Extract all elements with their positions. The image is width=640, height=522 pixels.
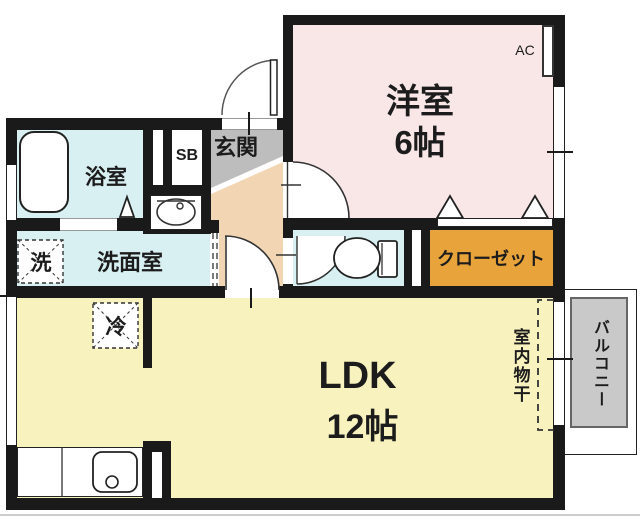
label-ac: AC [510, 41, 540, 59]
hall-door-swing [225, 236, 279, 290]
label-closet: クローゼット [432, 246, 550, 270]
label-balcony: バルコニー [587, 310, 611, 418]
indoor-drying-bracket [538, 300, 554, 430]
label-washroom: 洗面室 [90, 248, 170, 274]
toilet-bowl [334, 238, 380, 278]
entry-door-arc [222, 60, 277, 115]
label-western-size: 6帖 [360, 121, 480, 159]
label-bath: 浴室 [70, 164, 142, 188]
bath-door-marker [120, 197, 134, 217]
label-shoebox: SB [170, 146, 204, 166]
bathtub [20, 132, 68, 212]
sink-drain [106, 476, 118, 488]
washbasin-bowl [157, 199, 195, 225]
floorplan: 洋室 6帖 LDK 12帖 浴室 洗面室 洗 冷 玄関 SB クローゼット 室内… [0, 0, 640, 522]
washbasin-faucet [177, 203, 183, 209]
label-indoor-drying: 室内物干 [508, 316, 532, 416]
label-washer: 洗 [29, 250, 53, 274]
label-fridge: 冷 [104, 314, 128, 338]
label-ldk-size: 12帖 [300, 403, 425, 443]
label-ldk: LDK [300, 354, 415, 398]
closet-door-marker [522, 196, 548, 218]
label-western-room: 洋室 [360, 78, 480, 118]
entry-door-leaf [271, 60, 278, 115]
western-door-swing [293, 162, 349, 218]
label-entrance: 玄関 [200, 133, 272, 159]
closet-door-marker [437, 196, 463, 218]
